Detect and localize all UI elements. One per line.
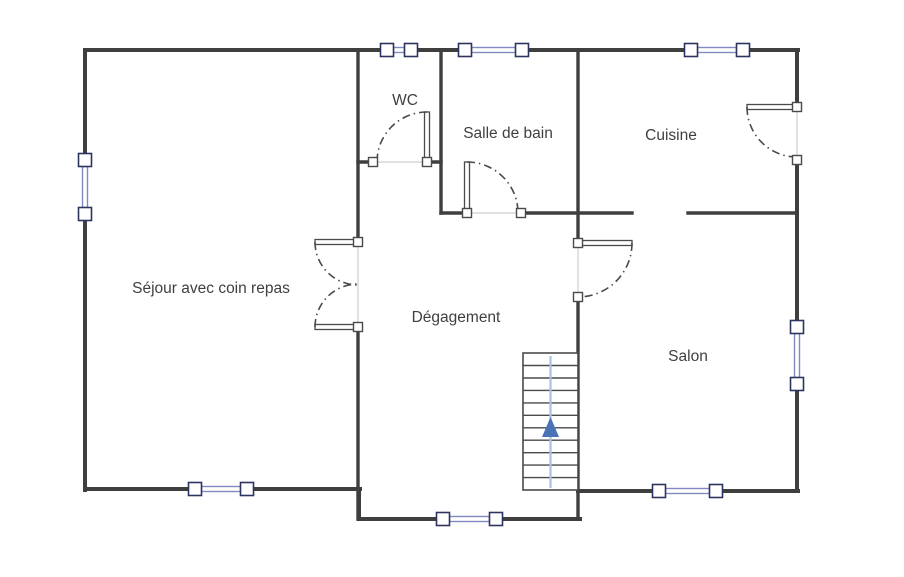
door-sdb-arc [467, 162, 518, 213]
window-salon-right [791, 321, 804, 391]
window-glass [450, 517, 490, 522]
window-frame [189, 483, 202, 496]
door-entry-arc [747, 107, 797, 157]
window-frame [516, 44, 529, 57]
window-frame [79, 208, 92, 221]
room-label-salle-de-bain: Salle de bain [463, 125, 553, 142]
window-degagement-bottom [437, 513, 503, 526]
window-frame [685, 44, 698, 57]
double-door-bottom-leaf [315, 325, 358, 330]
window-glass [202, 487, 241, 492]
door-sdb-leaf [465, 162, 470, 213]
window-wc-top [381, 44, 418, 57]
door-wc-leaf [425, 112, 430, 162]
door-wc [369, 112, 432, 167]
window-sdb-top [459, 44, 529, 57]
double-door-sejour [315, 238, 363, 332]
window-frame [459, 44, 472, 57]
room-label-degagement: Dégagement [412, 309, 501, 326]
window-frame [437, 513, 450, 526]
window-glass [83, 167, 88, 208]
door-entry-leaf [747, 105, 797, 110]
floor-plan-drawing: Séjour avec coin repas WC Salle de bain … [0, 0, 904, 577]
door-salon-jamb [574, 293, 583, 302]
door-entry-hinge [793, 103, 802, 112]
double-door-bottom-arc [315, 284, 358, 327]
floor-plan: Séjour avec coin repas WC Salle de bain … [0, 0, 904, 577]
window-frame [791, 321, 804, 334]
window-cuisine-top [685, 44, 750, 57]
room-labels: Séjour avec coin repas WC Salle de bain … [132, 92, 708, 365]
door-sdb-hinge [463, 209, 472, 218]
window-glass [698, 48, 737, 53]
window-glass [472, 48, 516, 53]
door-salon [574, 239, 633, 302]
door-salon-arc [578, 243, 632, 297]
window-sejour-bottom [189, 483, 254, 496]
window-frame [381, 44, 394, 57]
window-frame [79, 154, 92, 167]
door-salon-hinge [574, 239, 583, 248]
door-sdb-jamb [517, 209, 526, 218]
room-label-wc: WC [392, 92, 418, 109]
door-entry-jamb [793, 156, 802, 165]
window-glass [666, 489, 710, 494]
double-door-top-leaf [315, 240, 358, 245]
window-frame [241, 483, 254, 496]
double-door-top-arc [315, 242, 358, 285]
window-sejour-left [79, 154, 92, 221]
double-door-top-hinge [354, 238, 363, 247]
window-glass [394, 48, 405, 53]
door-salon-leaf [578, 241, 632, 246]
door-wc-arc [377, 112, 427, 162]
window-frame [490, 513, 503, 526]
door-wc-hinge [423, 158, 432, 167]
window-frame [737, 44, 750, 57]
room-label-sejour: Séjour avec coin repas [132, 280, 290, 297]
door-wc-jamb [369, 158, 378, 167]
room-label-cuisine: Cuisine [645, 127, 697, 144]
staircase [523, 353, 578, 490]
window-salon-bottom [653, 485, 723, 498]
double-door-bottom-hinge [354, 323, 363, 332]
window-frame [791, 378, 804, 391]
door-entry-cuisine [747, 103, 802, 165]
window-frame [405, 44, 418, 57]
door-salle-de-bain [463, 162, 526, 218]
window-glass [795, 334, 800, 378]
room-label-salon: Salon [668, 348, 708, 365]
window-frame [710, 485, 723, 498]
window-frame [653, 485, 666, 498]
